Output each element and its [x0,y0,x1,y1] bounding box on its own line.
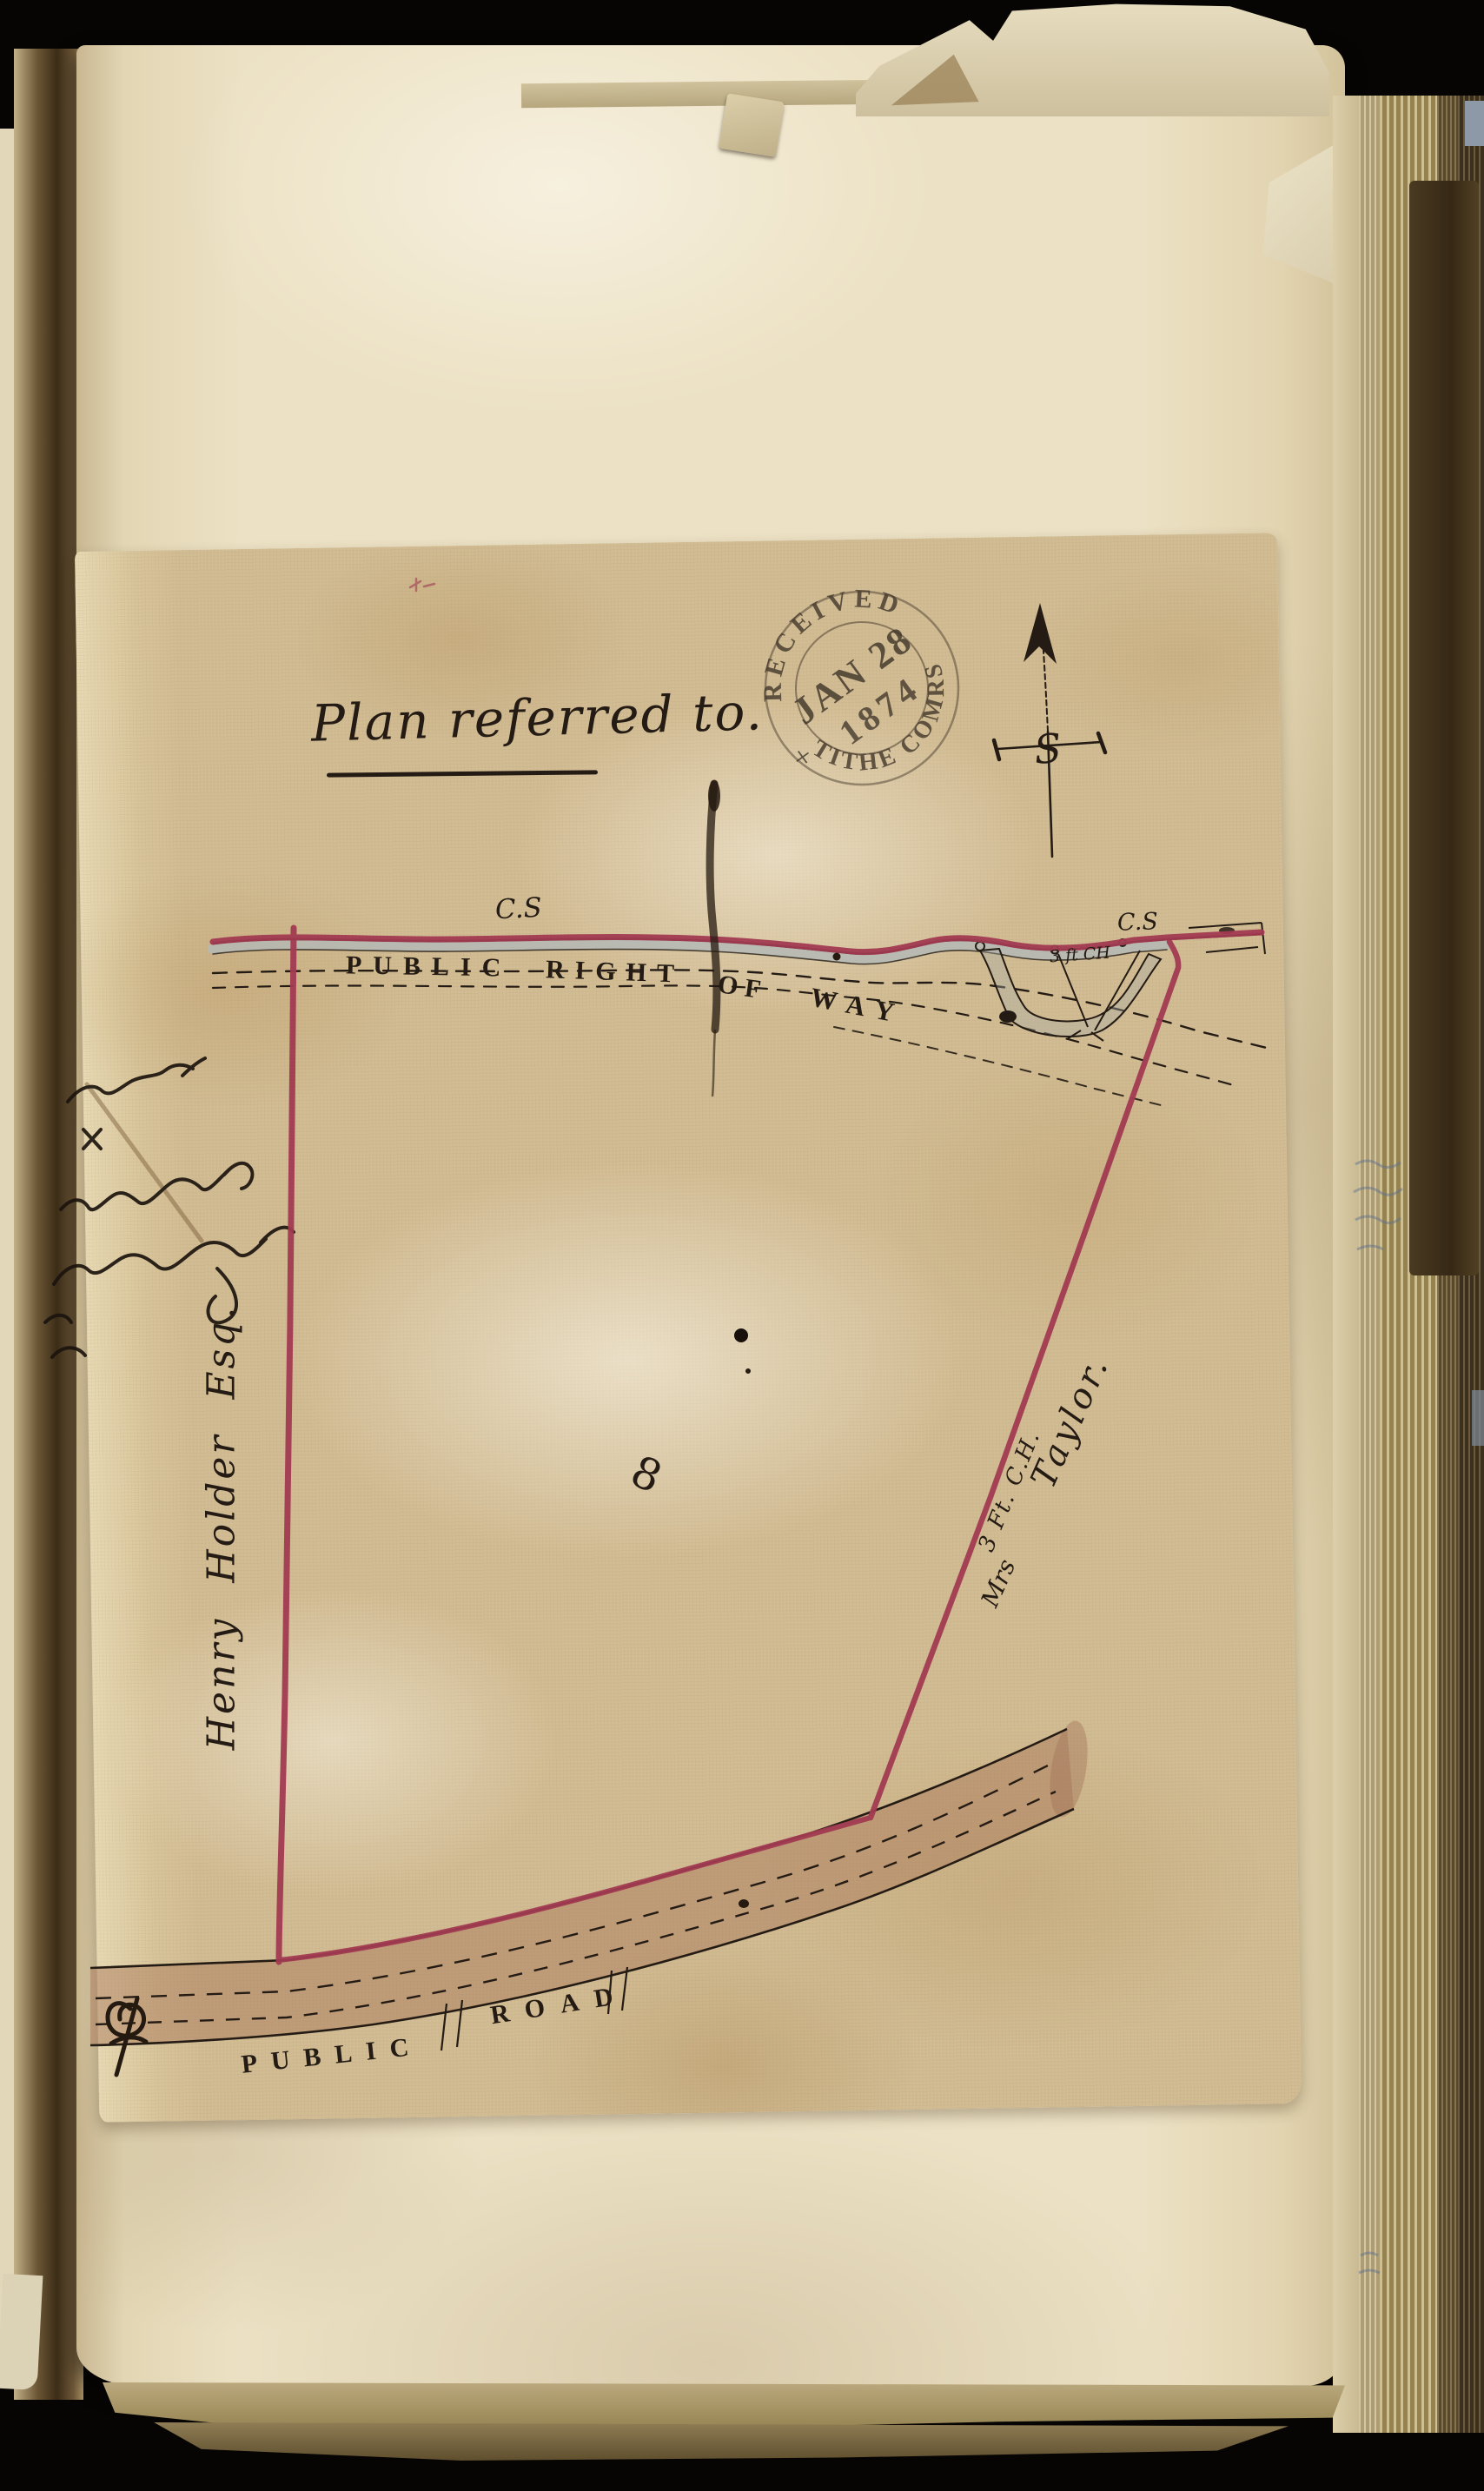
fore-edge-dark-block [1409,181,1479,1275]
row-word-public: PUBLIC [346,951,513,983]
cs-label-right: C.S [1116,908,1158,937]
facing-page-corner [0,2274,43,2390]
cs-label-left: C.S [494,892,543,926]
blue-paper-sliver [1465,101,1484,146]
tithe-plan-sheet [75,533,1302,2123]
page-title: Plan referred to. [310,682,764,753]
fore-edge-layer [1333,96,1359,2433]
blue-paper-sliver [1472,1390,1484,1446]
binding-gutter [14,49,83,2400]
underlying-page-edge [521,80,886,108]
fore-edge-layer [1359,96,1380,2433]
bound-volume-photo: S RECEIVED TITHE COMRS JAN 28 1874 + Pla… [0,0,1484,2491]
row-word-right: RIGHT [545,955,685,990]
torn-paper-tab [719,93,784,157]
owner-left-label: Henry Holder Esq. [200,1258,244,1797]
bottom-page-edges [130,2422,1312,2461]
